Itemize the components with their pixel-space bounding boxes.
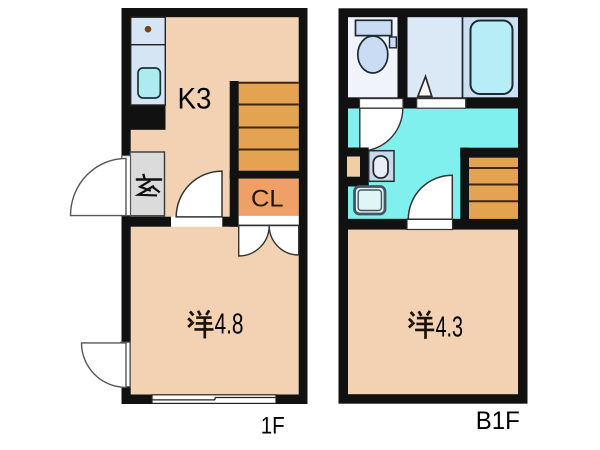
svg-text:B1F: B1F [476, 407, 520, 435]
svg-text:CL: CL [251, 185, 284, 212]
svg-text:1F: 1F [261, 413, 285, 440]
svg-text:K3: K3 [178, 82, 212, 115]
svg-text:4.8: 4.8 [215, 309, 244, 341]
svg-text:4.3: 4.3 [436, 311, 464, 343]
